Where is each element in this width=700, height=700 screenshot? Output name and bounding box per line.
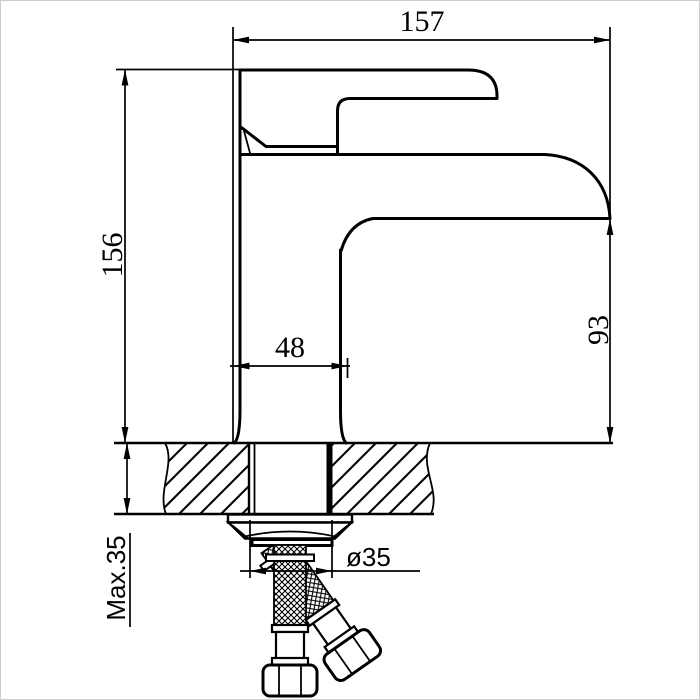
faucet-body <box>235 70 611 443</box>
counter-hatch-left <box>163 443 249 514</box>
body-right-edge <box>341 250 347 443</box>
dim-deck-thickness: Max.35 <box>101 443 131 627</box>
countertop-section <box>114 443 613 514</box>
arrowhead-down-icon <box>122 427 129 443</box>
dim-base-width-label: 48 <box>275 331 305 364</box>
spout-underside <box>341 219 610 252</box>
counter-hatch-right <box>332 443 434 514</box>
handle-lever <box>240 70 497 154</box>
shank-wall-right <box>327 443 333 514</box>
arrowhead-right-icon <box>316 568 332 575</box>
arrowhead-down-icon <box>607 427 614 443</box>
dim-hole-diameter-label: ø35 <box>346 542 391 572</box>
mounting-hardware <box>228 515 352 546</box>
dim-spout-height-label: 93 <box>582 315 615 345</box>
spout-top-edge <box>241 155 610 219</box>
dim-base-width: 48 <box>230 331 350 378</box>
body-left-edge <box>235 70 241 443</box>
arrowhead-right-icon <box>594 37 610 44</box>
technical-drawing-page: ø35 157 156 48 93 <box>0 0 700 700</box>
arrowhead-down-icon <box>124 498 131 514</box>
arrowhead-up-icon <box>124 443 131 459</box>
dim-deck-thickness-label: Max.35 <box>101 535 131 620</box>
dim-overall-height: 156 <box>96 70 240 444</box>
arrowhead-left-icon <box>250 568 266 575</box>
faucet-technical-drawing: ø35 157 156 48 93 <box>0 0 700 700</box>
dim-overall-height-label: 156 <box>96 233 129 278</box>
arrowhead-left-icon <box>233 37 249 44</box>
arrowhead-up-icon <box>122 70 129 86</box>
dim-overall-width-label: 157 <box>400 5 445 38</box>
handle-underside <box>242 128 338 147</box>
arrowhead-up-icon <box>607 219 614 235</box>
